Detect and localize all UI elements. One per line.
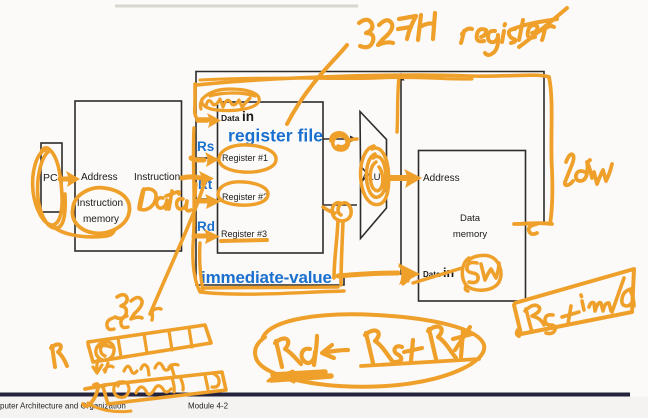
svg-text:Data: Data (460, 213, 481, 224)
svg-text:Data: Data (221, 113, 240, 123)
svg-text:PC: PC (43, 172, 58, 184)
svg-text:memory: memory (453, 229, 488, 240)
svg-text:Register #3: Register #3 (221, 229, 267, 239)
svg-text:memory: memory (83, 214, 119, 225)
svg-text:Register #1: Register #1 (222, 153, 268, 163)
svg-text:Instruction: Instruction (134, 172, 180, 183)
svg-text:register file: register file (228, 126, 323, 146)
svg-text:immediate-value: immediate-value (201, 268, 332, 287)
svg-text:Address: Address (81, 172, 118, 183)
svg-text:in: in (242, 109, 254, 124)
svg-text:Instruction: Instruction (77, 198, 123, 209)
svg-text:Rs: Rs (197, 139, 214, 154)
svg-text:Module 4-2: Module 4-2 (188, 402, 229, 411)
svg-text:Address: Address (423, 173, 460, 184)
